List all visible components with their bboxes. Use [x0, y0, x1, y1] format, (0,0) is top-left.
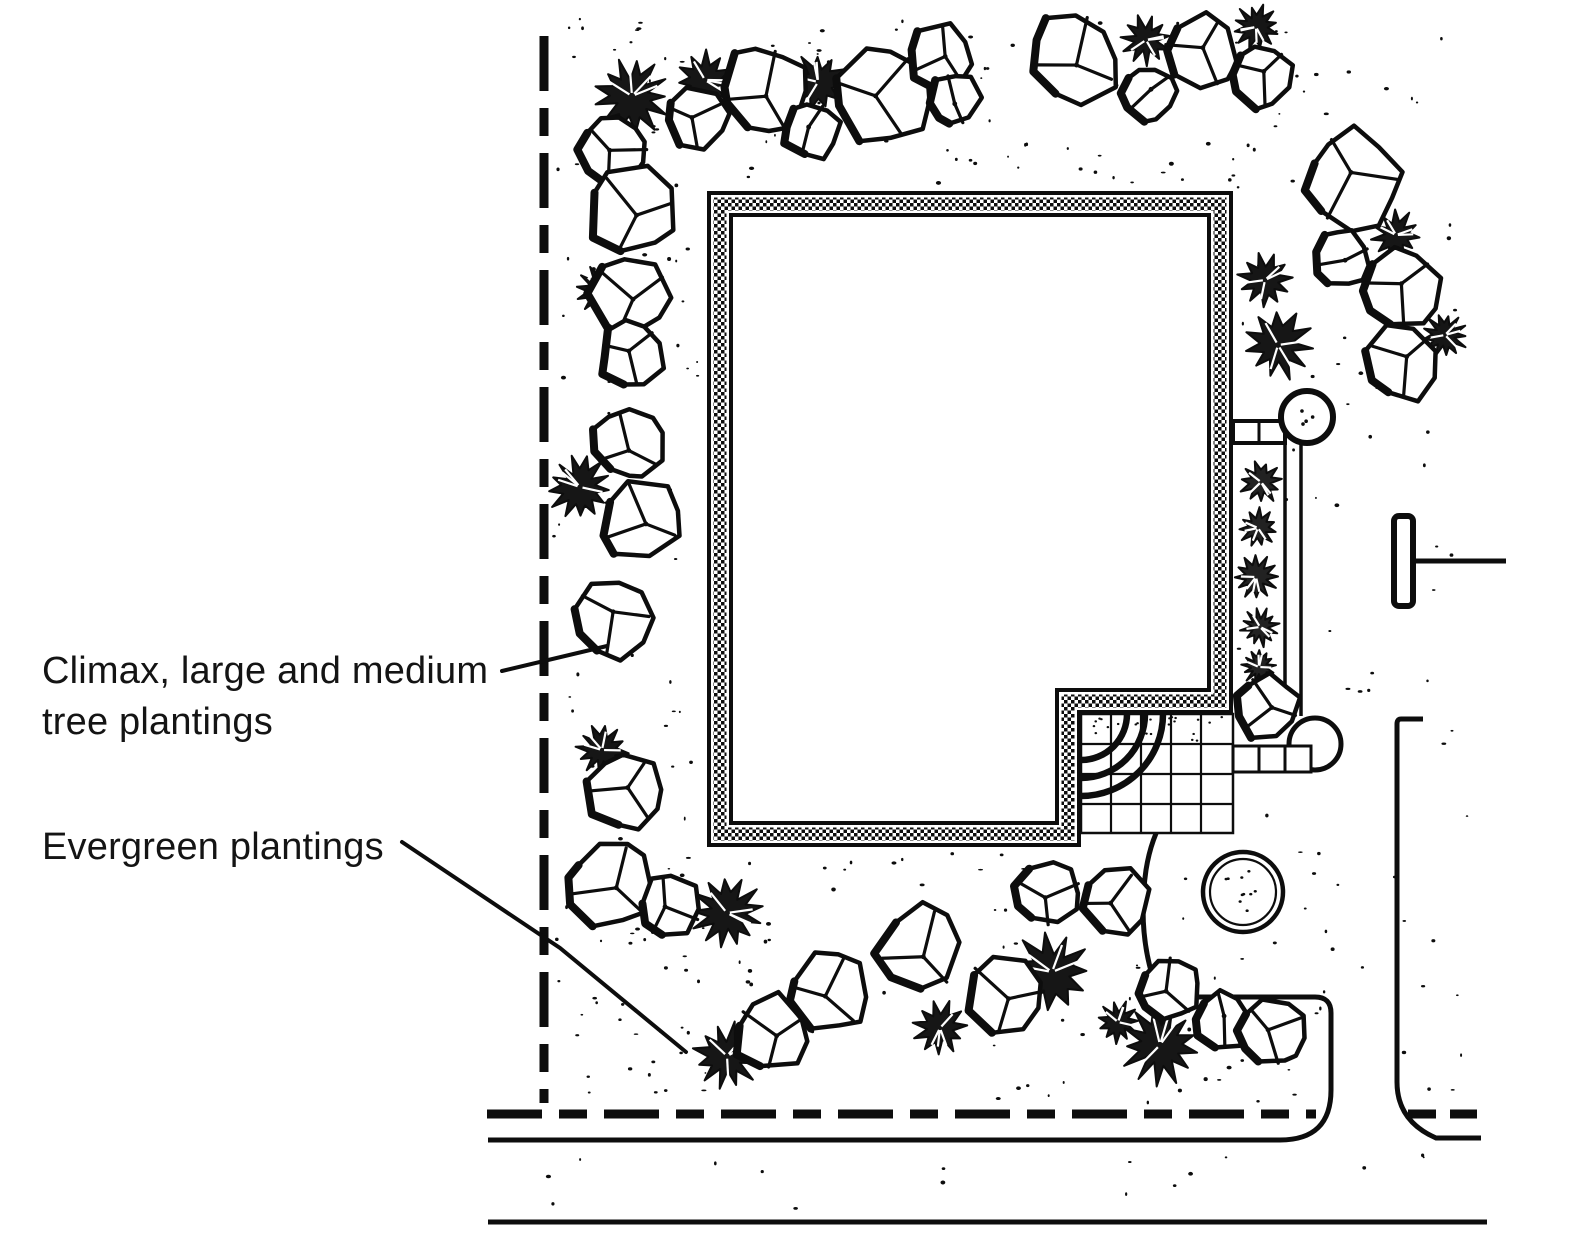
label-climax-line1: Climax, large and medium [42, 646, 488, 697]
label-climax-trees: Climax, large and medium tree plantings [42, 646, 488, 748]
landscape-site-plan: Climax, large and medium tree plantings … [0, 0, 1569, 1242]
site-plan-drawing [0, 0, 1569, 1242]
label-evergreen-plantings: Evergreen plantings [42, 822, 384, 873]
label-evergreen-line1: Evergreen plantings [42, 822, 384, 873]
label-climax-line2: tree plantings [42, 697, 488, 748]
